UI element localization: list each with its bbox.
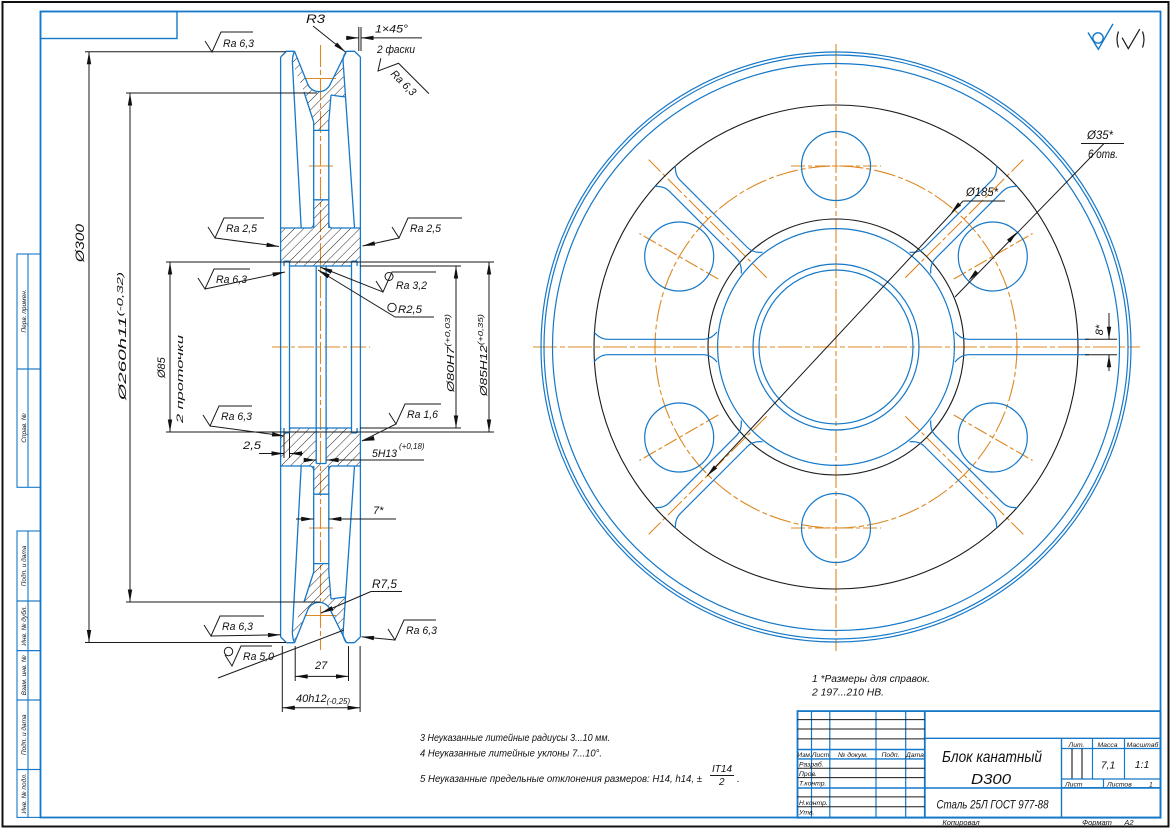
svg-text:Ra 2,5: Ra 2,5 bbox=[410, 223, 442, 235]
svg-text:Ra 6,3: Ra 6,3 bbox=[216, 274, 248, 286]
svg-text:D300: D300 bbox=[971, 771, 1012, 788]
svg-text:2 проточки: 2 проточки bbox=[175, 334, 186, 425]
svg-text:2: 2 bbox=[718, 777, 725, 788]
svg-text:Инв. № подл.: Инв. № подл. bbox=[20, 773, 28, 814]
svg-text:8*: 8* bbox=[1094, 324, 1106, 335]
svg-text:Подп. и дата: Подп. и дата bbox=[20, 714, 28, 755]
svg-text:5Н13: 5Н13 bbox=[372, 448, 398, 460]
svg-text:Н.контр.: Н.контр. bbox=[799, 800, 828, 807]
svg-text:Ra 2,5: Ra 2,5 bbox=[226, 223, 258, 235]
svg-text:Лист: Лист bbox=[811, 752, 830, 759]
svg-text:Инв. № дубл.: Инв. № дубл. bbox=[20, 606, 28, 646]
svg-text:5 Неуказанные предельные откл: 5 Неуказанные предельные отклонения разм… bbox=[420, 773, 702, 785]
svg-text:Ra 6,3: Ra 6,3 bbox=[222, 621, 254, 633]
svg-text:4 Неуказанные литейные уклоны: 4 Неуказанные литейные уклоны 7...10°. bbox=[420, 748, 602, 760]
svg-text:7,1: 7,1 bbox=[1101, 760, 1116, 772]
svg-text:6 отв.: 6 отв. bbox=[1088, 149, 1118, 161]
svg-text:3 Неуказанные литейные радиус: 3 Неуказанные литейные радиусы 3...10 мм… bbox=[420, 732, 610, 744]
svg-text:Утв.: Утв. bbox=[798, 810, 815, 817]
svg-text:Изм.: Изм. bbox=[797, 752, 812, 759]
svg-text:А2: А2 bbox=[1123, 818, 1134, 827]
svg-text:1: 1 bbox=[1149, 781, 1153, 788]
svg-text:Взам. инв. №: Взам. инв. № bbox=[21, 655, 28, 695]
svg-text:Пров.: Пров. bbox=[799, 771, 817, 778]
svg-text:2,5: 2,5 bbox=[242, 440, 262, 452]
svg-text:Перв. примен.: Перв. примен. bbox=[21, 289, 28, 332]
svg-text:№ докум.: № докум. bbox=[838, 751, 868, 759]
svg-text:2 фаски: 2 фаски bbox=[376, 44, 415, 56]
svg-text:Сталь 25Л ГОСТ 977-88: Сталь 25Л ГОСТ 977-88 bbox=[937, 798, 1049, 812]
svg-text:Ra 3,2: Ra 3,2 bbox=[396, 280, 427, 292]
svg-text:(+0,18): (+0,18) bbox=[399, 442, 425, 451]
svg-text:Ra 6,3: Ra 6,3 bbox=[406, 625, 438, 637]
svg-text:Ra 1,6: Ra 1,6 bbox=[407, 409, 439, 421]
svg-text:IT14: IT14 bbox=[712, 764, 732, 775]
svg-text:Подп.: Подп. bbox=[881, 751, 899, 759]
svg-text:.: . bbox=[737, 773, 740, 785]
svg-text:1 *Размеры для справок.: 1 *Размеры для справок. bbox=[812, 674, 930, 685]
svg-text:Ra 6,3: Ra 6,3 bbox=[223, 38, 255, 50]
svg-text:Масштаб: Масштаб bbox=[1127, 741, 1160, 749]
svg-text:Ø185*: Ø185* bbox=[965, 187, 998, 199]
svg-text:Ra 5,0: Ra 5,0 bbox=[243, 651, 275, 663]
svg-text:7*: 7* bbox=[373, 505, 384, 517]
svg-text:Ø300: Ø300 bbox=[75, 223, 87, 263]
svg-text:Дата: Дата bbox=[905, 752, 924, 759]
svg-text:Формат: Формат bbox=[1082, 818, 1112, 827]
svg-text:1:1: 1:1 bbox=[1135, 759, 1150, 771]
svg-text:Копировал: Копировал bbox=[942, 818, 980, 827]
svg-text:R2,5: R2,5 bbox=[398, 304, 423, 316]
svg-text:Подп. и дата: Подп. и дата bbox=[20, 545, 28, 586]
svg-text:1×45°: 1×45° bbox=[375, 24, 409, 36]
svg-text:Лист: Лист bbox=[1064, 781, 1083, 788]
svg-text:R7,5: R7,5 bbox=[372, 579, 398, 591]
svg-text:Ø35*: Ø35* bbox=[1086, 130, 1114, 142]
svg-text:2 197...210 НВ.: 2 197...210 НВ. bbox=[811, 688, 884, 699]
svg-text:Ra 6,3: Ra 6,3 bbox=[221, 411, 253, 423]
svg-text:Т.контр.: Т.контр. bbox=[799, 780, 827, 787]
svg-text:Справ. №: Справ. № bbox=[21, 413, 28, 443]
svg-text:Ø85: Ø85 bbox=[156, 356, 168, 379]
svg-text:Разраб.: Разраб. bbox=[799, 761, 824, 769]
svg-text:27: 27 bbox=[314, 660, 328, 672]
svg-text:Масса: Масса bbox=[1097, 742, 1117, 749]
svg-text:Блок канатный: Блок канатный bbox=[942, 749, 1042, 766]
svg-text:Лит.: Лит. bbox=[1068, 742, 1085, 749]
svg-text:Листов: Листов bbox=[1106, 781, 1132, 788]
svg-text:R3: R3 bbox=[306, 14, 326, 26]
